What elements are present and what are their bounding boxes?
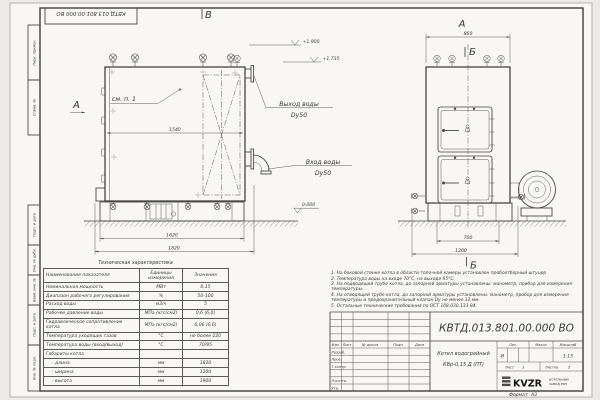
table-row: Расход воды м3/ч 5 bbox=[44, 300, 229, 309]
note-item: 5. Остальные технические требования по О… bbox=[331, 304, 583, 309]
drawing-sheet: КВТД.013.801.00.000 ВО Перв. примен. Спр… bbox=[0, 0, 600, 400]
tech-table-title: Техническая характеристика bbox=[43, 261, 228, 266]
level-zero-value: 0.000 bbox=[302, 202, 315, 208]
tb-row-tkontr: Т.контр. bbox=[332, 365, 347, 369]
table-cell: Номинальная мощность bbox=[44, 282, 140, 291]
note-item: 4. На отводящей трубе котла, до запорной… bbox=[331, 293, 583, 303]
table-cell: Рабочее давление воды bbox=[44, 309, 140, 318]
note-item: 1. На боковой стенке котла в области топ… bbox=[331, 271, 583, 276]
side-view-label: А bbox=[458, 19, 466, 30]
see-item-label: см. п. 1 bbox=[112, 96, 136, 103]
water-outlet-dn: Dy50 bbox=[291, 112, 307, 119]
water-inlet-dn: Dy50 bbox=[315, 170, 331, 177]
section-b-top-label: Б bbox=[469, 47, 476, 58]
kvzr-logo-sub1: КОТЕЛЬНЫЙ bbox=[549, 377, 569, 382]
tb-row-razrab: Разраб. bbox=[332, 350, 346, 354]
tb-lit-value: И bbox=[501, 354, 505, 360]
tb-lit-header: Лит. bbox=[508, 343, 517, 347]
note-item: 3. На подводящей трубе котла, до запорно… bbox=[331, 282, 583, 292]
table-cell: 70/95 bbox=[183, 341, 229, 350]
sidebar-label: Инв. № подл. bbox=[32, 356, 36, 380]
sidebar-label: Справ. № bbox=[32, 99, 36, 116]
note-item: 2. Температура воды на входе 70°С, на вы… bbox=[331, 277, 583, 282]
tb-scale-header: Масштаб bbox=[560, 343, 577, 347]
table-cell: - ширина bbox=[44, 368, 140, 377]
tb-col-list: Лист bbox=[342, 343, 353, 347]
view-a-label: А bbox=[72, 100, 80, 111]
table-cell bbox=[140, 350, 183, 359]
kvzr-logo-text: KVZR bbox=[513, 379, 543, 390]
technical-notes: 1. На боковой стенке котла в области топ… bbox=[331, 271, 583, 309]
sidebar-label: Инв. № дубл. bbox=[32, 248, 36, 272]
sidebar-label: Подп. и дата bbox=[32, 213, 36, 237]
table-cell: °С bbox=[140, 341, 183, 350]
tech-table: Наименование показателя Единицы измерени… bbox=[43, 268, 229, 386]
table-cell: - длина bbox=[44, 359, 140, 368]
table-cell: °С bbox=[140, 332, 183, 341]
product-name: Котел водогрейный bbox=[437, 351, 490, 357]
tb-row-prov: Пров. bbox=[332, 358, 342, 362]
table-cell: 0,6 (6,0) bbox=[183, 309, 229, 318]
table-row: Температура уходящих газов °С не более 2… bbox=[44, 332, 229, 341]
table-cell: МПа (кгс/см2) bbox=[140, 309, 183, 318]
table-row: - высота мм 1900 bbox=[44, 377, 229, 386]
stamp-doc-number: КВТД.013.801.00.000 ВО bbox=[56, 10, 126, 16]
tb-sheet-label: Лист bbox=[504, 365, 515, 369]
tb-col-dokum: № докум. bbox=[361, 343, 379, 347]
level-1735-value: +1.735 bbox=[323, 56, 340, 62]
table-cell: Расход воды bbox=[44, 300, 140, 309]
table-cell: Температура воды (вход/выход) bbox=[44, 341, 140, 350]
water-outlet-label: Выход воды bbox=[279, 101, 319, 108]
tb-doc-number: КВТД.013.801.00.000 ВО bbox=[439, 323, 574, 335]
table-cell: м3/ч bbox=[140, 300, 183, 309]
tb-row-utv: Утв. bbox=[332, 386, 339, 390]
table-cell: 1820 bbox=[183, 359, 229, 368]
table-cell: 0,15 bbox=[183, 282, 229, 291]
table-cell: 1900 bbox=[183, 377, 229, 386]
view-b-label: В bbox=[205, 10, 212, 21]
table-cell: Температура уходящих газов bbox=[44, 332, 140, 341]
sidebar-label: Перв. примен. bbox=[32, 39, 36, 65]
table-cell: % bbox=[140, 291, 183, 300]
table-cell: 1200 bbox=[183, 368, 229, 377]
tb-col-podp: Подп. bbox=[393, 343, 404, 347]
table-cell: мм bbox=[140, 368, 183, 377]
sidebar-label: Взам. инв. № bbox=[32, 278, 36, 302]
tb-scale-value: 1:15 bbox=[563, 354, 573, 360]
water-inlet-label: Вход воды bbox=[306, 159, 341, 166]
dim-1200-value: 1200 bbox=[455, 248, 467, 254]
table-cell: Диапазон рабочего регулирования bbox=[44, 291, 140, 300]
dim-700-value: 700 bbox=[464, 235, 473, 241]
dim-1620-value: 1620 bbox=[166, 233, 178, 239]
tb-sheets-label: Листов bbox=[544, 365, 558, 369]
table-row: Габариты котла bbox=[44, 350, 229, 359]
dim-1820-value: 1820 bbox=[168, 246, 180, 252]
table-row: - длина мм 1820 bbox=[44, 359, 229, 368]
table-cell: мм bbox=[140, 377, 183, 386]
table-cell: мм bbox=[140, 359, 183, 368]
format-label: Формат bbox=[509, 392, 528, 398]
table-cell bbox=[183, 350, 229, 359]
table-row: Диапазон рабочего регулирования % 50-100 bbox=[44, 291, 229, 300]
table-cell: - высота bbox=[44, 377, 140, 386]
table-cell: Габариты котла bbox=[44, 350, 140, 359]
tb-col-izm: Изм. bbox=[332, 343, 340, 347]
table-row: Температура воды (вход/выход) °С 70/95 bbox=[44, 341, 229, 350]
table-header-unit: Единицы измерения bbox=[140, 269, 183, 283]
product-model: КВр-0,15 Д (ПТ) bbox=[443, 362, 484, 368]
table-row: Номинальная мощность МВт 0,15 bbox=[44, 282, 229, 291]
table-header-row: Наименование показателя Единицы измерени… bbox=[44, 269, 229, 283]
ground-hatch bbox=[84, 221, 298, 228]
table-cell: МВт bbox=[140, 282, 183, 291]
dim-1540-value: 1540 bbox=[169, 127, 181, 133]
table-cell: МПа (кгс/см2) bbox=[140, 318, 183, 332]
table-cell: Гидравлическое сопротивление котла bbox=[44, 318, 140, 332]
table-header-value: Значения bbox=[183, 269, 229, 283]
table-row: - ширина мм 1200 bbox=[44, 368, 229, 377]
sidebar-label: Подп. и дата bbox=[32, 313, 36, 337]
tb-row-nkontr: Н.контр. bbox=[332, 379, 348, 383]
table-row: Рабочее давление воды МПа (кгс/см2) 0,6 … bbox=[44, 309, 229, 318]
table-header-name: Наименование показателя bbox=[44, 269, 140, 283]
section-b-bottom-label: Б bbox=[470, 261, 477, 272]
table-cell: 0,06 (0,6) bbox=[183, 318, 229, 332]
tech-characteristics: Техническая характеристика Наименование … bbox=[43, 261, 228, 386]
table-cell: 50-100 bbox=[183, 291, 229, 300]
table-row: Гидравлическое сопротивление котла МПа (… bbox=[44, 318, 229, 332]
tb-mass-header: Масса bbox=[535, 343, 546, 347]
table-cell: не более 220 bbox=[183, 332, 229, 341]
table-cell: 5 bbox=[183, 300, 229, 309]
kvzr-logo-sub2: ЗАВОД РЭП bbox=[549, 382, 567, 386]
dim-860-value: 860 bbox=[464, 31, 473, 37]
level-1900-value: +1.900 bbox=[303, 39, 320, 45]
tb-sheet-value: 1 bbox=[522, 365, 524, 369]
format-value: А3 bbox=[530, 392, 537, 398]
tb-col-data: Дата bbox=[414, 343, 424, 347]
format-note: Формат А3 bbox=[509, 392, 537, 398]
ground-hatch bbox=[398, 221, 566, 228]
